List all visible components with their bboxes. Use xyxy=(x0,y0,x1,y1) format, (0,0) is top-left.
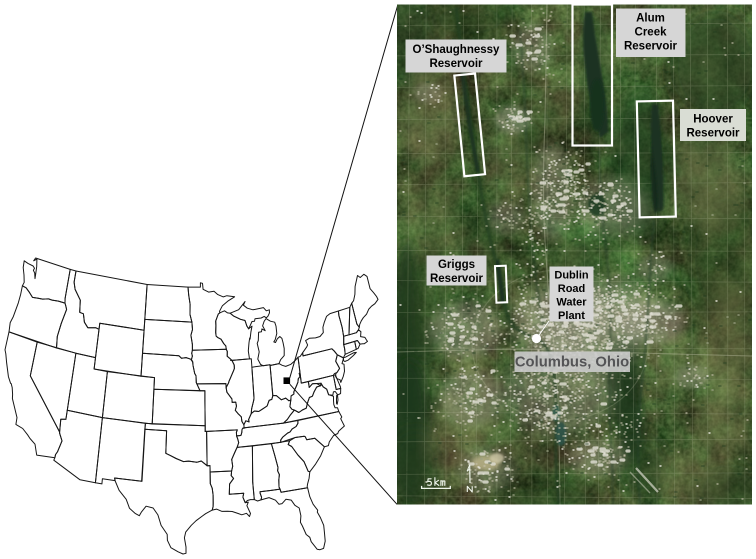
svg-text:O’Shaughnessy: O’Shaughnessy xyxy=(413,44,501,56)
svg-text:Reservoir: Reservoir xyxy=(430,273,484,285)
svg-text:Creek: Creek xyxy=(635,27,668,39)
svg-text:Road: Road xyxy=(558,283,586,295)
svg-text:Columbus, Ohio: Columbus, Ohio xyxy=(515,355,629,371)
svg-text:Reservoir: Reservoir xyxy=(686,128,740,140)
svg-text:Dublin: Dublin xyxy=(554,270,588,282)
svg-text:Water: Water xyxy=(556,297,587,309)
svg-text:Plant: Plant xyxy=(558,310,585,322)
svg-text:Reservoir: Reservoir xyxy=(429,58,483,70)
svg-text:Griggs: Griggs xyxy=(438,259,475,271)
svg-text:Hoover: Hoover xyxy=(693,114,733,126)
svg-text:Alum: Alum xyxy=(636,13,665,25)
svg-text:Reservoir: Reservoir xyxy=(624,41,678,53)
